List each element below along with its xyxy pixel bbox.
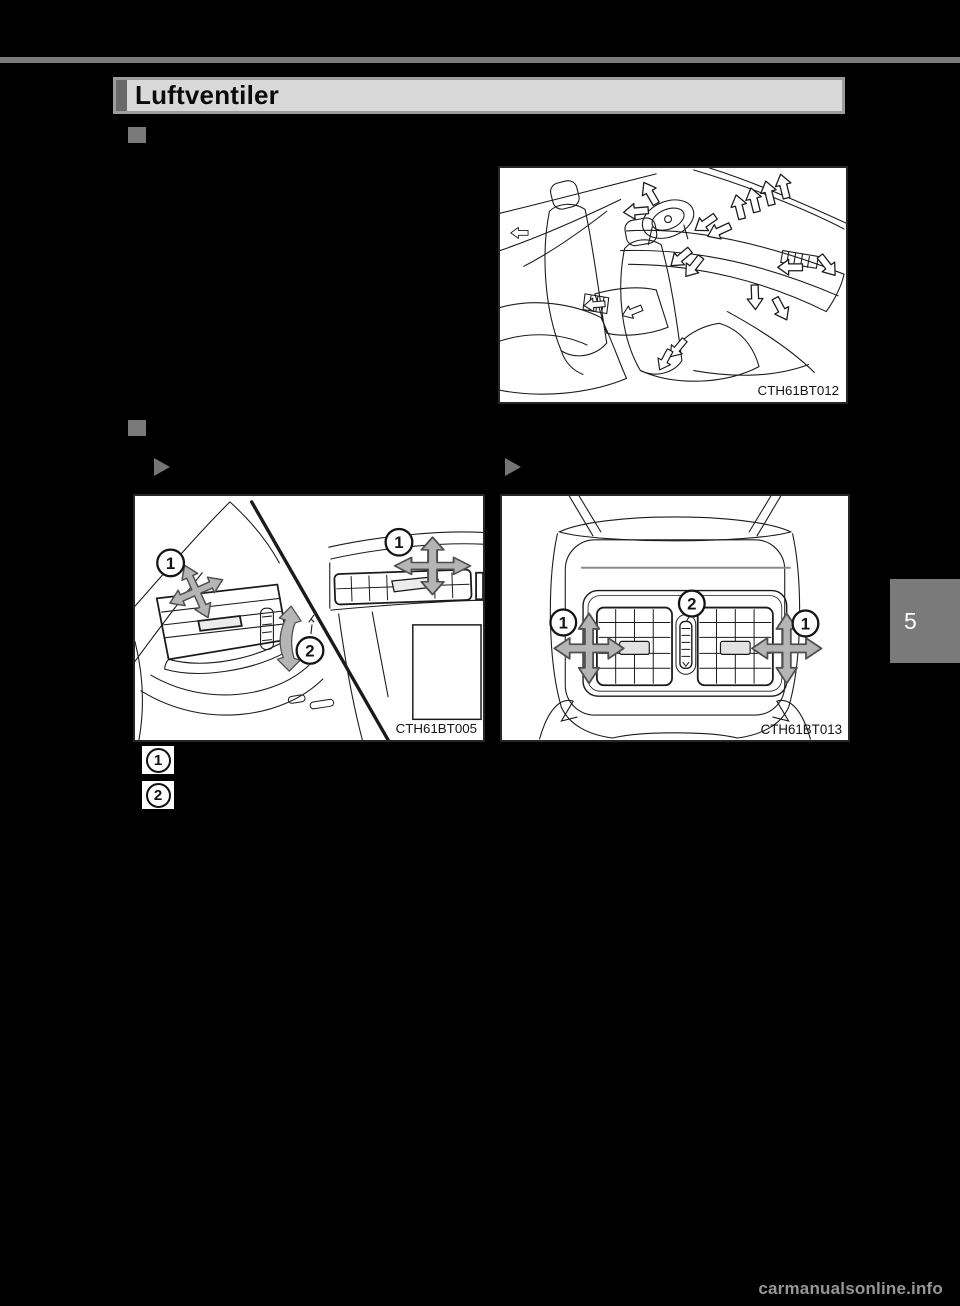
circled-number-icon: 1 bbox=[146, 748, 171, 773]
figure-front-vents: 1 1 2 CTH61BT005 bbox=[133, 494, 485, 742]
top-rule bbox=[0, 57, 960, 63]
figure-caption: CTH61BT005 bbox=[396, 721, 477, 736]
chapter-number: 5 bbox=[890, 608, 917, 635]
jump-marker-icon bbox=[505, 458, 521, 476]
manual-page: Luftventiler bbox=[0, 0, 960, 1306]
front-vents-art: 1 1 2 CTH61BT005 bbox=[135, 496, 483, 740]
page-title: Luftventiler bbox=[127, 80, 279, 111]
jump-marker-icon bbox=[154, 458, 170, 476]
airflow-arrows bbox=[511, 172, 842, 373]
circled-number-icon: 2 bbox=[146, 783, 171, 808]
section-header-bar: Luftventiler bbox=[113, 77, 845, 114]
section-bullet-icon bbox=[128, 127, 146, 143]
callout-number: 2 bbox=[305, 641, 314, 660]
callout-number: 1 bbox=[166, 554, 175, 573]
tilt-arrow-icon bbox=[277, 606, 301, 671]
callout-number: 2 bbox=[687, 594, 696, 613]
figure-caption: CTH61BT012 bbox=[758, 383, 840, 398]
figure-cabin-airflow: CTH61BT012 bbox=[498, 166, 848, 404]
header-inner: Luftventiler bbox=[127, 80, 842, 111]
callout-number: 1 bbox=[801, 614, 810, 633]
figure-rear-vents: 1 1 2 CTH61BT013 bbox=[500, 494, 850, 742]
callout-number: 1 bbox=[394, 533, 403, 552]
legend-item-2: 2 bbox=[142, 781, 174, 809]
cabin-airflow-art: CTH61BT012 bbox=[500, 168, 846, 402]
rear-vents-art: 1 1 2 CTH61BT013 bbox=[502, 496, 848, 740]
legend-item-1: 1 bbox=[142, 746, 174, 774]
watermark-text: carmanualsonline.info bbox=[758, 1279, 943, 1299]
header-accent-bar bbox=[116, 80, 127, 111]
figure-caption: CTH61BT013 bbox=[761, 722, 842, 737]
section-bullet-icon bbox=[128, 420, 146, 436]
chapter-tab: 5 bbox=[890, 579, 960, 663]
callout-number: 1 bbox=[559, 613, 568, 632]
